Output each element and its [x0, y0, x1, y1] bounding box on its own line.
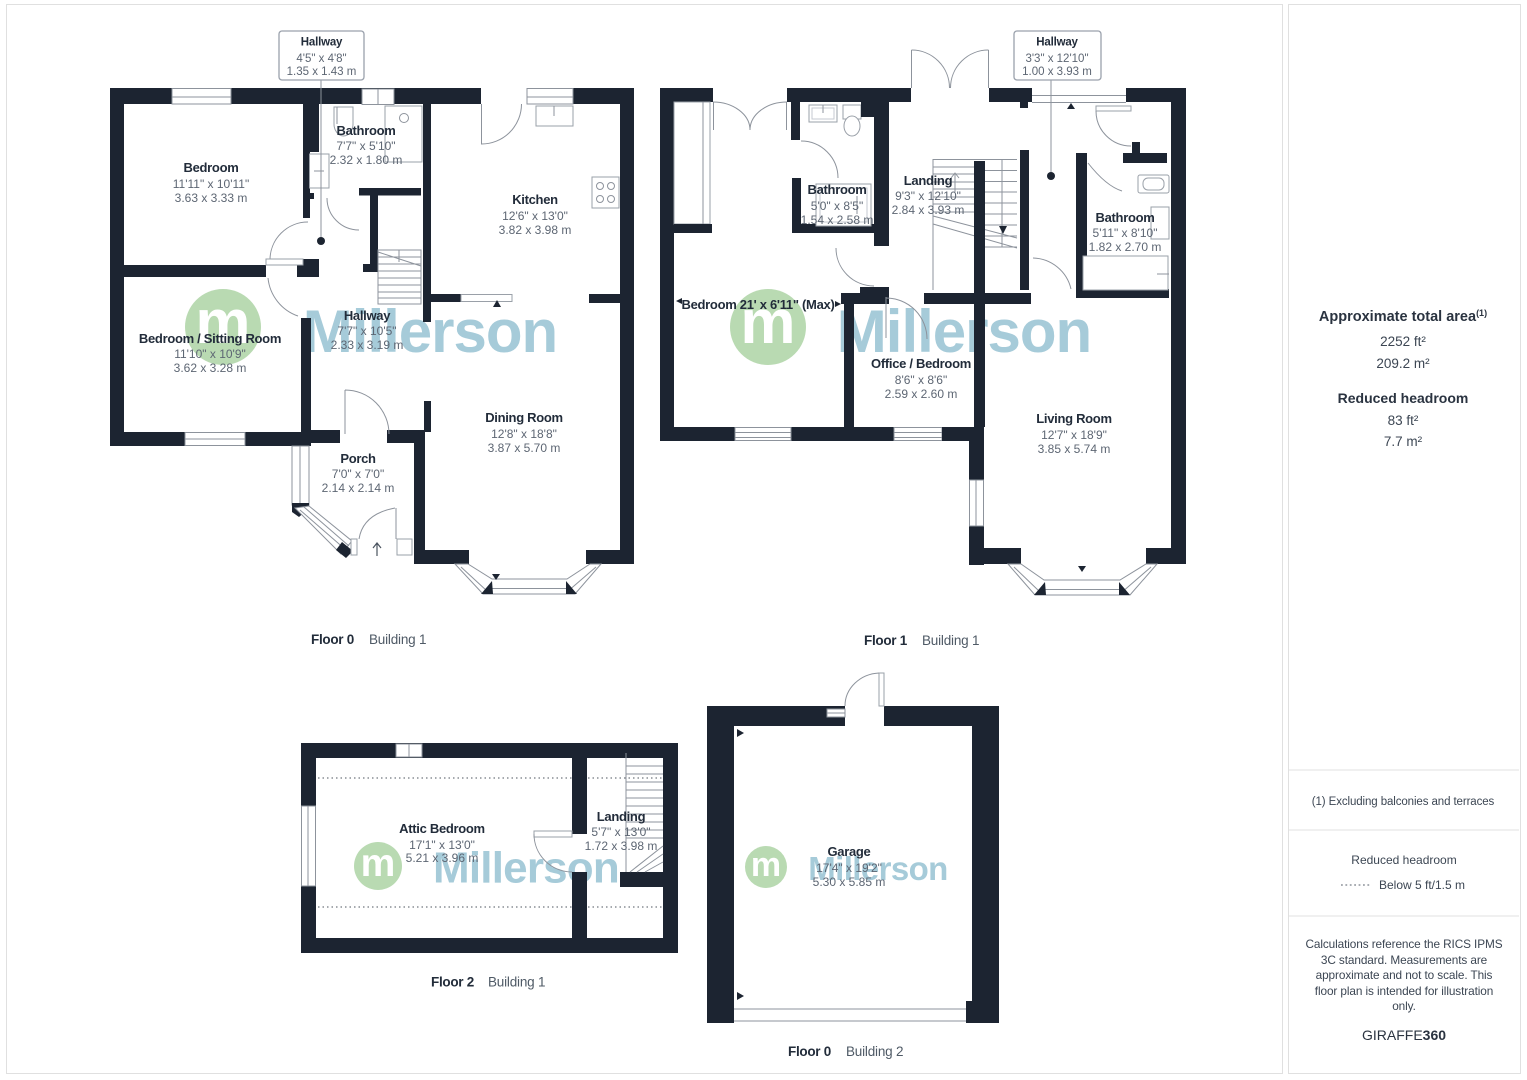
svg-text:3.87 x 5.70 m: 3.87 x 5.70 m	[488, 441, 561, 455]
svg-text:Reduced headroom: Reduced headroom	[1351, 853, 1456, 867]
svg-text:Dining Room: Dining Room	[485, 410, 563, 425]
svg-text:2.84 x 3.93 m: 2.84 x 3.93 m	[892, 203, 965, 217]
svg-text:Hallway: Hallway	[1036, 37, 1078, 49]
svg-text:2.59 x 2.60 m: 2.59 x 2.60 m	[885, 387, 958, 401]
svg-text:5.30 x 5.85 m: 5.30 x 5.85 m	[813, 875, 886, 889]
svg-text:Building 1: Building 1	[369, 632, 426, 647]
svg-text:7'0" x 7'0": 7'0" x 7'0"	[332, 467, 384, 481]
svg-text:Floor 2: Floor 2	[431, 975, 474, 990]
svg-text:Reduced headroom: Reduced headroom	[1338, 390, 1469, 406]
svg-text:Millerson: Millerson	[837, 298, 1091, 365]
svg-text:Hallway: Hallway	[301, 37, 343, 49]
svg-text:(1) Excluding balconies and te: (1) Excluding balconies and terraces	[1312, 796, 1495, 808]
svg-text:Building 1: Building 1	[488, 975, 545, 990]
svg-text:Garage: Garage	[827, 844, 870, 859]
svg-text:12'8" x 18'8": 12'8" x 18'8"	[491, 427, 557, 441]
svg-text:5'11" x 8'10": 5'11" x 8'10"	[1093, 226, 1158, 240]
svg-text:17'1" x 13'0": 17'1" x 13'0"	[409, 838, 475, 852]
svg-text:Floor 0: Floor 0	[311, 632, 354, 647]
svg-text:3.62 x 3.28 m: 3.62 x 3.28 m	[174, 361, 247, 375]
svg-text:2.33 x 3.19 m: 2.33 x 3.19 m	[331, 338, 404, 352]
svg-text:Building 2: Building 2	[846, 1044, 903, 1059]
svg-text:Bathroom: Bathroom	[1096, 210, 1155, 225]
svg-text:approximate and not to scale.: approximate and not to scale. This	[1316, 968, 1493, 982]
svg-text:9'3" x 12'10": 9'3" x 12'10"	[895, 189, 961, 203]
svg-text:3C standard. Measurements are: 3C standard. Measurements are	[1321, 953, 1488, 967]
svg-text:Bedroom: Bedroom	[184, 160, 239, 175]
svg-text:8'6" x 8'6": 8'6" x 8'6"	[895, 373, 947, 387]
svg-text:7'7" x 10'5": 7'7" x 10'5"	[337, 324, 396, 338]
svg-text:Bedroom / Sitting Room: Bedroom / Sitting Room	[139, 331, 281, 346]
svg-text:12'6" x 13'0": 12'6" x 13'0"	[502, 209, 568, 223]
svg-text:11'10" x 10'9": 11'10" x 10'9"	[174, 347, 246, 361]
svg-text:209.2 m²: 209.2 m²	[1376, 356, 1430, 371]
svg-text:Hallway: Hallway	[344, 308, 391, 323]
svg-text:83 ft²: 83 ft²	[1388, 413, 1419, 428]
svg-text:only.: only.	[1392, 999, 1416, 1013]
svg-text:2.32 x 1.80 m: 2.32 x 1.80 m	[330, 153, 403, 167]
svg-text:m: m	[751, 846, 781, 884]
svg-text:4'5" x 4'8": 4'5" x 4'8"	[296, 53, 346, 65]
svg-text:Approximate total area(1): Approximate total area(1)	[1319, 308, 1487, 325]
svg-text:1.35 x 1.43 m: 1.35 x 1.43 m	[287, 66, 357, 78]
svg-text:2252 ft²: 2252 ft²	[1380, 334, 1426, 349]
svg-text:1.00 x 3.93 m: 1.00 x 3.93 m	[1022, 66, 1092, 78]
svg-text:Floor 1: Floor 1	[864, 633, 908, 648]
svg-text:5'7" x 13'0": 5'7" x 13'0"	[591, 825, 650, 839]
svg-text:3'3" x 12'10": 3'3" x 12'10"	[1025, 53, 1088, 65]
svg-text:Calculations reference the RIC: Calculations reference the RICS IPMS	[1305, 937, 1502, 951]
svg-text:17'4" x 19'2": 17'4" x 19'2"	[816, 861, 882, 875]
svg-text:12'7" x 18'9": 12'7" x 18'9"	[1041, 428, 1107, 442]
svg-text:floor plan is intended for ill: floor plan is intended for illustration	[1315, 984, 1493, 998]
svg-text:Landing: Landing	[904, 173, 953, 188]
svg-text:GIRAFFE360: GIRAFFE360	[1362, 1027, 1446, 1043]
svg-text:1.82 x 2.70 m: 1.82 x 2.70 m	[1089, 240, 1162, 254]
svg-text:2.14 x 2.14 m: 2.14 x 2.14 m	[322, 481, 395, 495]
svg-text:3.63 x 3.33 m: 3.63 x 3.33 m	[175, 191, 248, 205]
svg-text:1.72 x 3.98 m: 1.72 x 3.98 m	[585, 839, 658, 853]
svg-text:5.21 x 3.96 m: 5.21 x 3.96 m	[406, 851, 479, 865]
svg-text:Office / Bedroom: Office / Bedroom	[871, 356, 971, 371]
svg-text:5'0" x 8'5": 5'0" x 8'5"	[811, 199, 863, 213]
svg-text:Bedroom 21' x 6'11" (Max): Bedroom 21' x 6'11" (Max)	[682, 297, 835, 312]
svg-text:7'7" x 5'10": 7'7" x 5'10"	[336, 139, 395, 153]
svg-text:Bathroom: Bathroom	[337, 123, 396, 138]
svg-text:Bathroom: Bathroom	[808, 182, 867, 197]
svg-text:7.7 m²: 7.7 m²	[1384, 434, 1423, 449]
svg-text:Kitchen: Kitchen	[512, 192, 558, 207]
svg-text:Building 1: Building 1	[922, 633, 979, 648]
svg-text:Landing: Landing	[597, 809, 646, 824]
svg-text:Below 5 ft/1.5 m: Below 5 ft/1.5 m	[1379, 878, 1465, 892]
svg-text:3.85 x 5.74 m: 3.85 x 5.74 m	[1038, 442, 1111, 456]
svg-text:Living Room: Living Room	[1036, 411, 1111, 426]
svg-text:1.54 x 2.58 m: 1.54 x 2.58 m	[801, 213, 874, 227]
svg-text:m: m	[361, 842, 396, 885]
svg-text:Porch: Porch	[340, 451, 376, 466]
svg-text:Floor 0: Floor 0	[788, 1044, 831, 1059]
svg-text:11'11" x 10'11": 11'11" x 10'11"	[173, 177, 250, 191]
svg-text:3.82 x 3.98 m: 3.82 x 3.98 m	[499, 223, 572, 237]
svg-text:Attic Bedroom: Attic Bedroom	[399, 821, 485, 836]
